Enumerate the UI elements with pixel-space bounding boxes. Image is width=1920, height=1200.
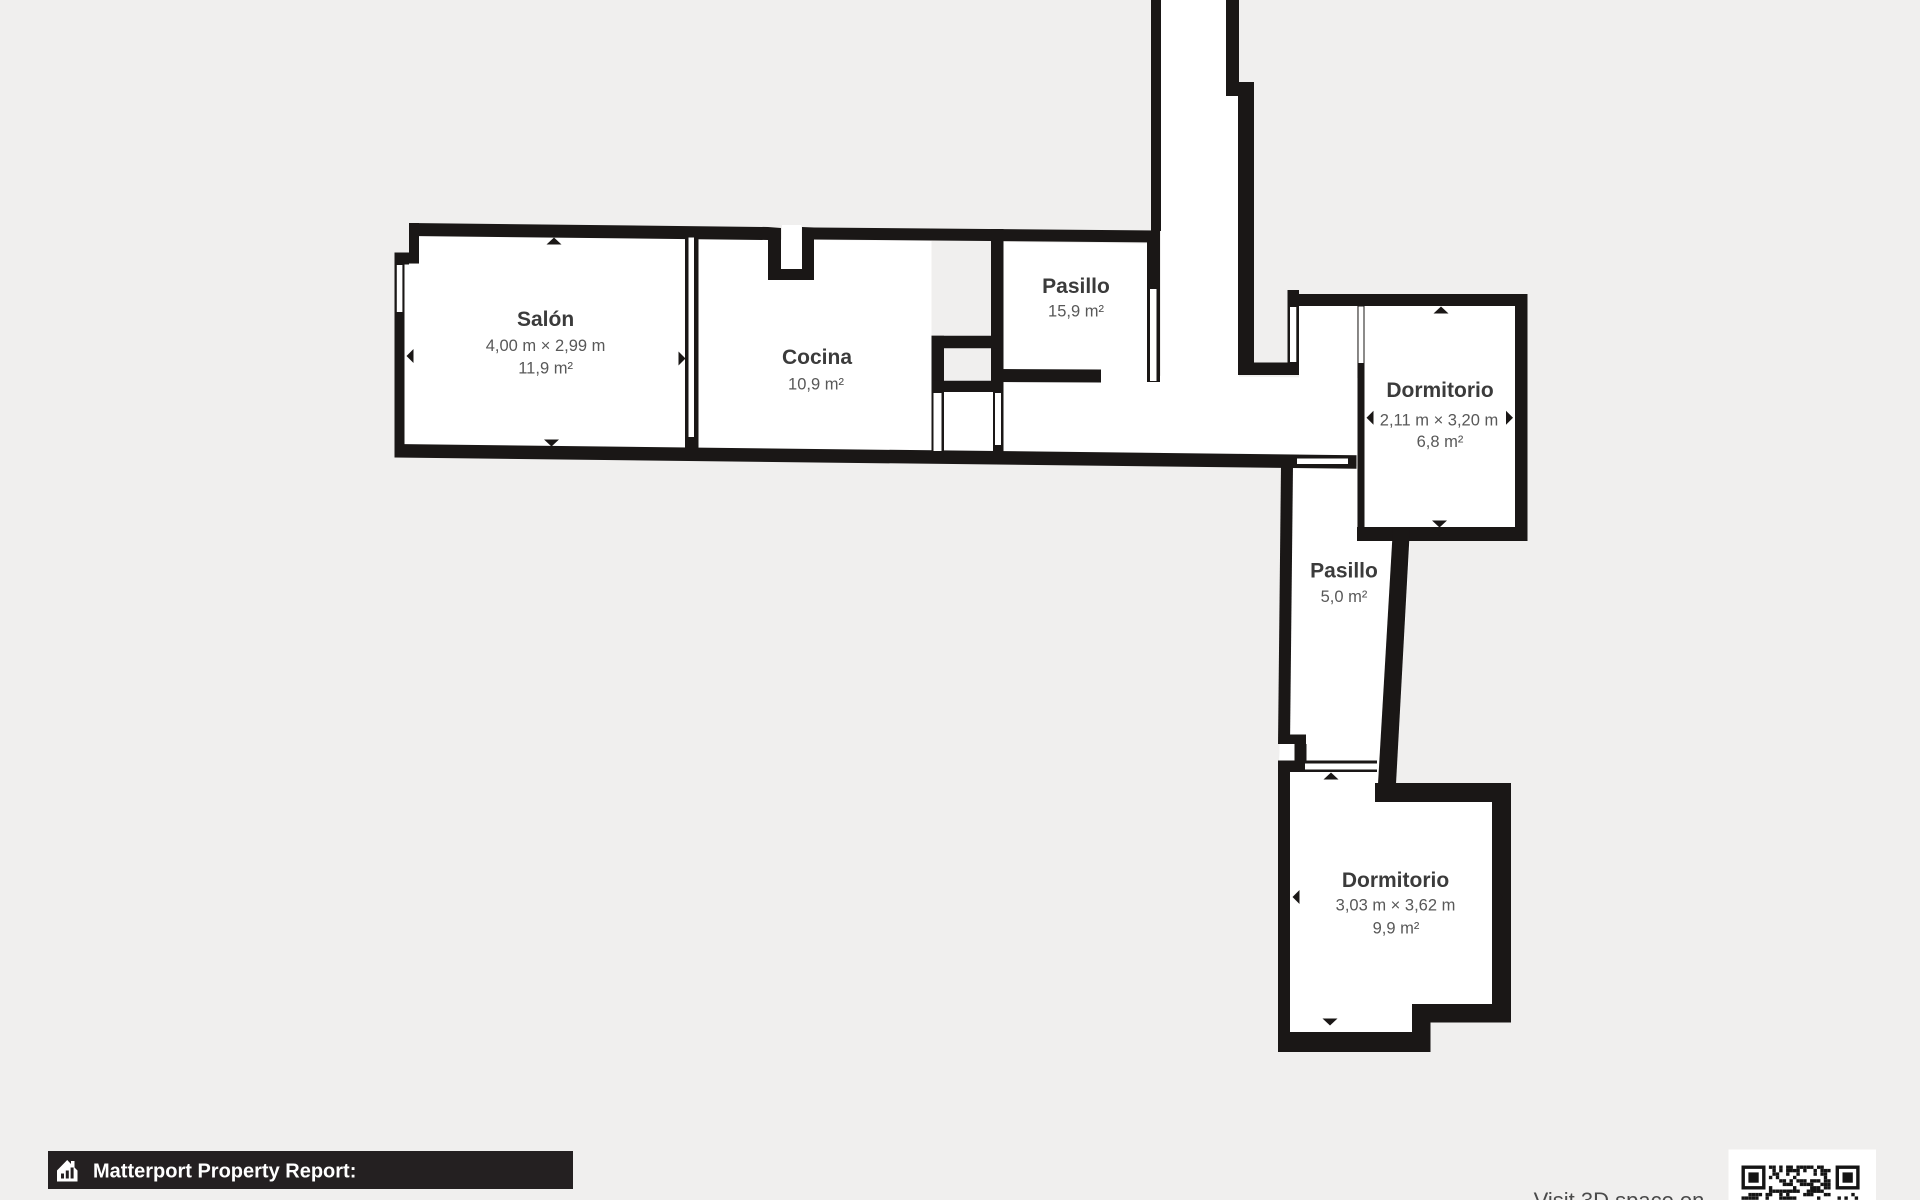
svg-text:3,03 m × 3,62 m: 3,03 m × 3,62 m — [1336, 897, 1456, 915]
svg-text:Matterport Property Report:: Matterport Property Report: — [93, 1161, 356, 1183]
svg-text:Salón: Salón — [517, 308, 574, 331]
svg-text:Pasillo: Pasillo — [1310, 560, 1378, 583]
svg-text:5,0 m²: 5,0 m² — [1321, 588, 1368, 606]
svg-text:9,9 m²: 9,9 m² — [1373, 920, 1420, 938]
svg-text:Dormitorio: Dormitorio — [1342, 869, 1449, 892]
svg-text:10,9 m²: 10,9 m² — [788, 376, 844, 394]
svg-text:4,00 m × 2,99 m: 4,00 m × 2,99 m — [486, 337, 606, 355]
svg-text:Pasillo: Pasillo — [1042, 275, 1110, 298]
svg-text:11,9 m²: 11,9 m² — [518, 359, 573, 377]
svg-text:Cocina: Cocina — [782, 346, 852, 369]
svg-text:15,9 m²: 15,9 m² — [1048, 303, 1104, 321]
svg-text:6,8 m²: 6,8 m² — [1417, 433, 1464, 451]
svg-text:Dormitorio: Dormitorio — [1386, 379, 1493, 402]
svg-text:2,11 m × 3,20 m: 2,11 m × 3,20 m — [1380, 412, 1498, 430]
svg-text:Visit 3D space on: Visit 3D space on — [1534, 1188, 1705, 1200]
